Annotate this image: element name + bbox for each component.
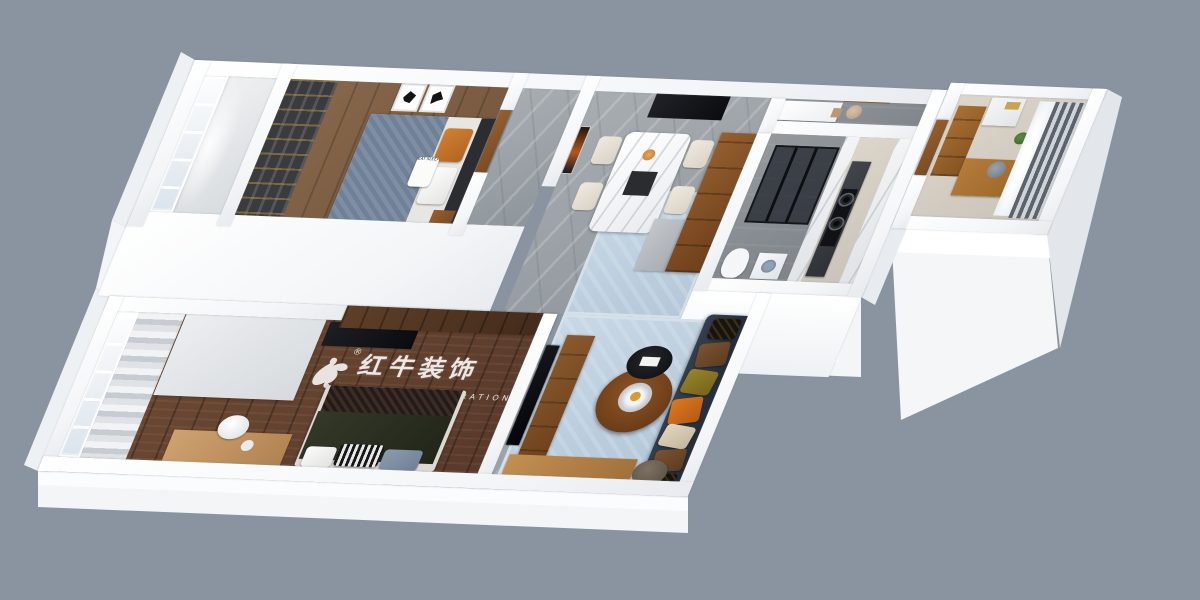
registered-mark: ® [351,348,364,358]
black-gold-pillow [706,318,742,339]
olive-pillow [679,368,720,396]
cream-pillow [657,423,697,450]
fruit-bowl [629,392,643,402]
ceiling-lamp [1004,102,1021,110]
desk-decor [239,440,256,452]
orange-pillow [667,396,704,425]
striped-pillow [332,444,385,468]
table-tray [622,171,658,196]
table-tray [613,382,657,413]
apartment-plan: EAT SLEEP [0,60,1200,582]
blue-pillow [378,449,424,471]
floorplan-render: EAT SLEEP [0,0,1200,600]
bird-silhouette [401,91,418,103]
bird-silhouette [429,91,446,104]
glass-frame-mullion [765,148,798,222]
wall-media-panel [647,93,731,120]
pillow-text: EAT SLEEP [417,157,440,162]
washer-drum [759,260,778,273]
white-pillow [300,446,338,467]
brown-pillow [694,341,731,367]
flower-vase [641,149,658,161]
brand-name-zh: 红牛装饰 [354,352,485,383]
